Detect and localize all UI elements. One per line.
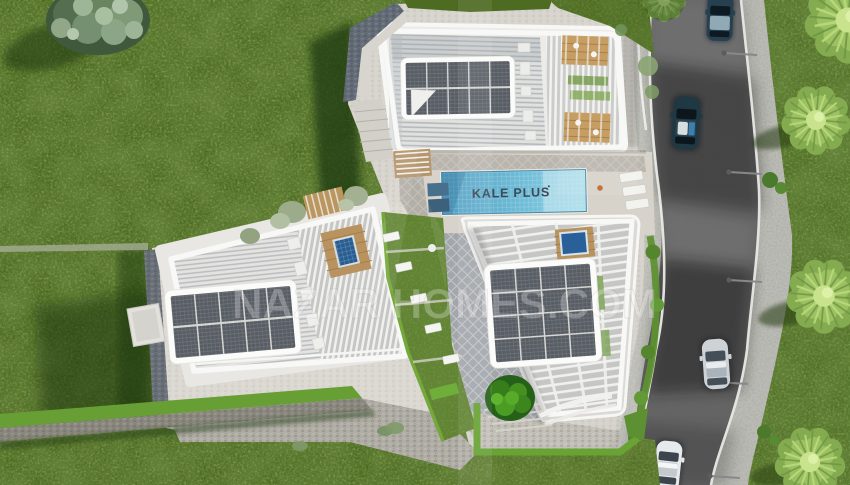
svg-text:NAZAR HOMES.COM: NAZAR HOMES.COM	[232, 280, 660, 327]
